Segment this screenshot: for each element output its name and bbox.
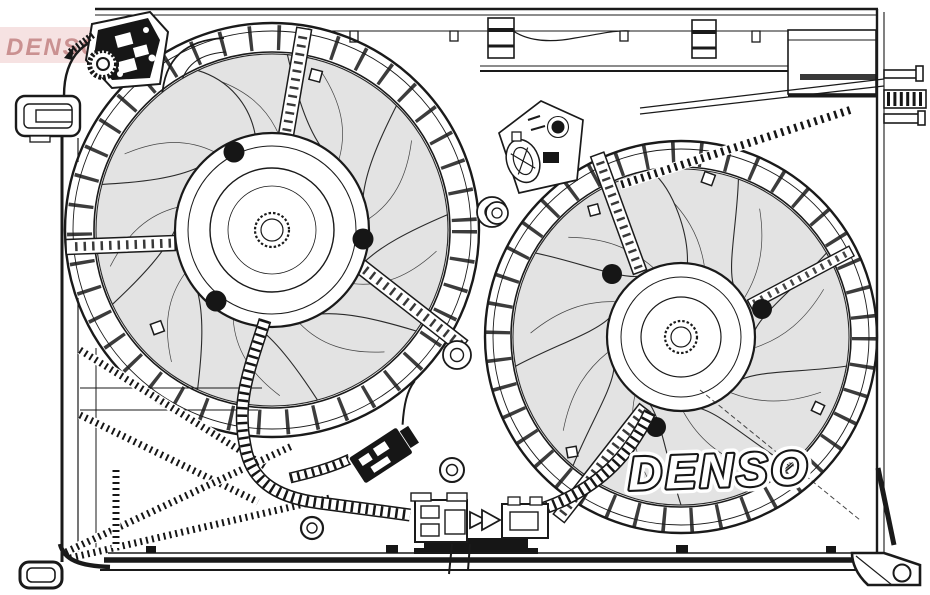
radiator-tubes [620,66,926,185]
left-hub-mount-bolt [353,229,374,250]
connector-b [502,497,548,538]
right-hub-mount-bolt [602,264,622,284]
top-right-box [788,30,878,96]
module-block [543,152,559,163]
blade-clip [309,69,322,82]
module-dot [552,121,565,134]
blade-clip [566,446,578,458]
left-hub-mount-bolt [224,142,245,163]
harness-grommet [440,458,464,482]
tube-fitting-1 [884,66,923,81]
top-cutout-curve [505,24,630,41]
module-grommet [486,202,508,224]
tube-fitting-2 [884,90,926,108]
tube-fitting-3 [884,111,925,125]
connector-a [411,493,467,542]
frame-tab [620,31,628,41]
left-mount-bracket [16,96,80,142]
tube-dark-band [800,74,876,80]
screw-boss-bottom [443,341,471,369]
toothed-grommet [90,51,117,78]
motor-plug [333,381,448,485]
top-clip-left [488,18,514,58]
fan-assembly-illustration: DENSO [0,0,930,595]
right-hub-mount-bolt [752,299,772,319]
frame-tab [450,31,458,41]
top-clip-right [692,20,716,58]
left-fan-spoke-left [66,236,175,255]
frame-tab [752,31,760,42]
brand-logo: DENSO DENSO [627,441,811,500]
harness-grommet [301,517,323,539]
left-hub-mount-bolt [206,291,227,312]
plug-branch-conduit [290,459,350,478]
product-image: DENSO [0,0,930,595]
blade-clip [588,204,600,216]
bottom-left-foot [20,562,62,588]
plug-chevron [482,510,500,530]
brand-logo-text: DENSO [627,441,811,500]
ribbed-hose [620,110,850,185]
ribbed-brace [80,415,258,502]
bottom-right-foot [852,468,920,585]
